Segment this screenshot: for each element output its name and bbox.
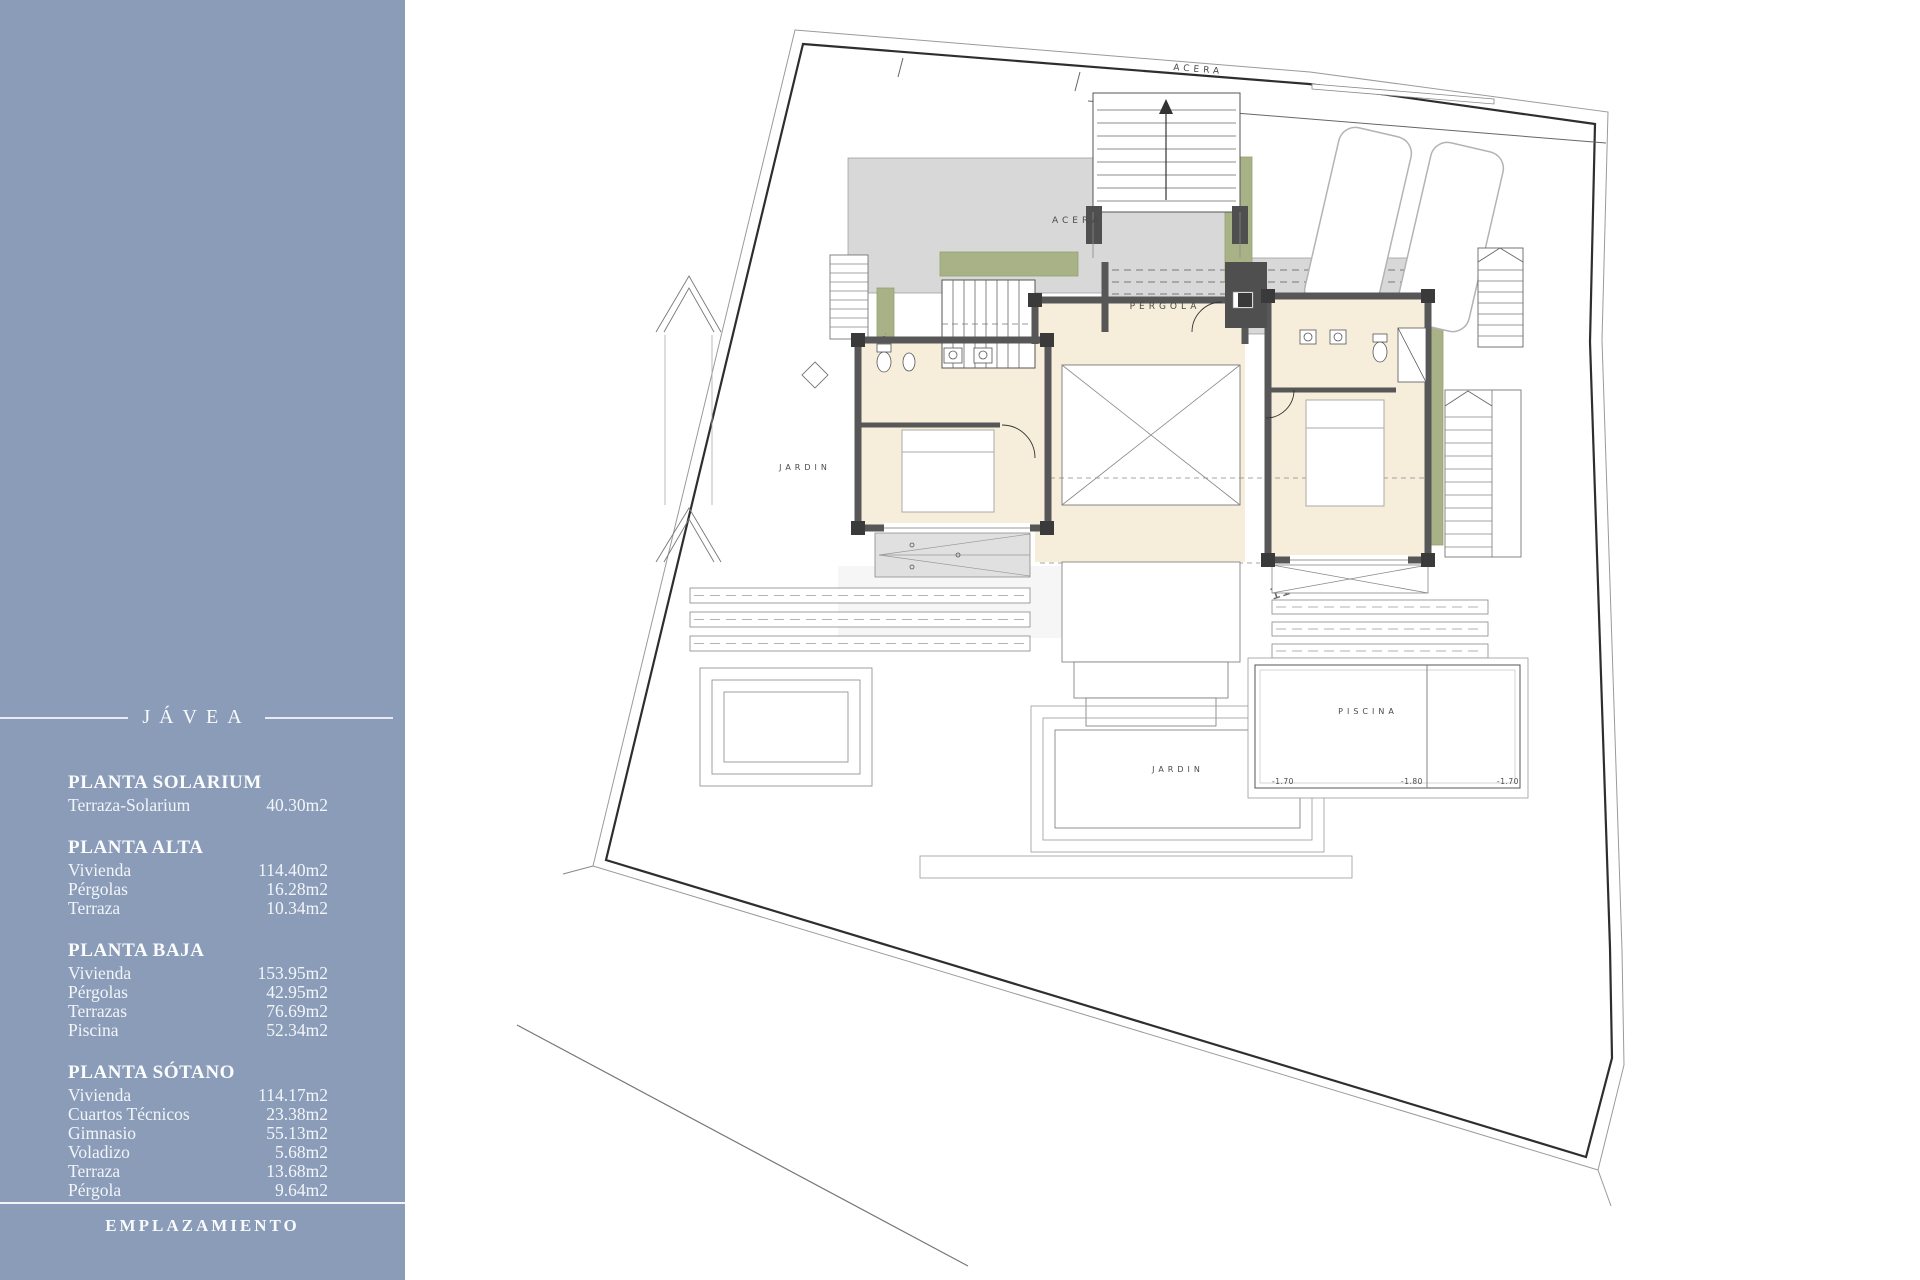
area-value: 114.17m2	[258, 1086, 328, 1105]
brochure-page: JÁVEA PLANTA SOLARIUM Terraza-Solarium 4…	[0, 0, 1920, 1280]
area-row: Pérgolas 42.95m2	[68, 983, 328, 1002]
area-row: Voladizo 5.68m2	[68, 1143, 328, 1162]
garden-bottom-label: JARDIN	[1151, 765, 1204, 774]
area-label: Pérgolas	[68, 983, 128, 1002]
view-name: EMPLAZAMIENTO	[0, 1216, 405, 1236]
area-label: Vivienda	[68, 861, 131, 880]
title-rule-right	[265, 717, 393, 719]
area-value: 40.30m2	[266, 796, 328, 815]
area-value: 42.95m2	[266, 983, 328, 1002]
porch-steps	[1062, 562, 1240, 726]
area-label: Vivienda	[68, 1086, 131, 1105]
green-strip	[940, 252, 1078, 276]
floor-section: PLANTA SÓTANO Vivienda 114.17m2 Cuartos …	[68, 1062, 328, 1200]
area-label: Vivienda	[68, 964, 131, 983]
area-value: 16.28m2	[266, 880, 328, 899]
site-plan: ACERA JARD. 117,55	[405, 0, 1920, 1280]
sidewalk-strip	[898, 58, 1606, 143]
area-label: Piscina	[68, 1021, 119, 1040]
floor-rows: Terraza-Solarium 40.30m2	[68, 796, 328, 815]
area-label: Terraza-Solarium	[68, 796, 190, 815]
pool-depth-right: -1.70	[1497, 777, 1519, 786]
garden-steps-left	[656, 255, 868, 562]
sidebar: JÁVEA PLANTA SOLARIUM Terraza-Solarium 4…	[0, 0, 405, 1280]
slat-terrace-left	[690, 588, 1030, 651]
project-title-block: JÁVEA	[0, 706, 405, 729]
area-label: Terrazas	[68, 1002, 127, 1021]
right-stair-upper	[1478, 248, 1523, 347]
pool-label: PISCINA	[1338, 707, 1398, 716]
area-row: Gimnasio 55.13m2	[68, 1124, 328, 1143]
area-label: Voladizo	[68, 1143, 130, 1162]
title-rule-left	[0, 717, 128, 719]
area-value: 13.68m2	[266, 1162, 328, 1181]
area-value: 55.13m2	[266, 1124, 328, 1143]
area-value: 52.34m2	[266, 1021, 328, 1040]
footer-divider	[0, 1202, 405, 1204]
area-row: Vivienda 114.17m2	[68, 1086, 328, 1105]
right-stair-lower	[1445, 390, 1521, 557]
area-row: Vivienda 114.40m2	[68, 861, 328, 880]
floor-heading: PLANTA ALTA	[68, 837, 328, 859]
area-row: Terrazas 76.69m2	[68, 1002, 328, 1021]
area-value: 153.95m2	[258, 964, 329, 983]
area-row: Terraza-Solarium 40.30m2	[68, 796, 328, 815]
area-label: Pérgolas	[68, 880, 128, 899]
floor-rows: Vivienda 114.40m2 Pérgolas 16.28m2 Terra…	[68, 861, 328, 918]
floor-section: PLANTA ALTA Vivienda 114.40m2 Pérgolas 1…	[68, 837, 328, 918]
area-label: Terraza	[68, 1162, 120, 1181]
area-label: Gimnasio	[68, 1124, 136, 1143]
floor-rows: Vivienda 153.95m2 Pérgolas 42.95m2 Terra…	[68, 964, 328, 1040]
pergola-label: PÉRGOLA	[1130, 300, 1201, 312]
area-label: Terraza	[68, 899, 120, 918]
x-brace-terrace	[1272, 565, 1428, 593]
floor-heading: PLANTA BAJA	[68, 940, 328, 962]
street-line	[517, 1025, 968, 1266]
area-value: 76.69m2	[266, 1002, 328, 1021]
area-summary: PLANTA SOLARIUM Terraza-Solarium 40.30m2…	[68, 772, 328, 1222]
area-label: Cuartos Técnicos	[68, 1105, 190, 1124]
area-value: 10.34m2	[266, 899, 328, 918]
area-row: Pérgola 9.64m2	[68, 1181, 328, 1200]
floor-heading: PLANTA SOLARIUM	[68, 772, 328, 794]
floor-section: PLANTA SOLARIUM Terraza-Solarium 40.30m2	[68, 772, 328, 815]
floor-rows: Vivienda 114.17m2 Cuartos Técnicos 23.38…	[68, 1086, 328, 1200]
area-value: 23.38m2	[266, 1105, 328, 1124]
area-row: Cuartos Técnicos 23.38m2	[68, 1105, 328, 1124]
project-title: JÁVEA	[142, 706, 250, 729]
area-row: Pérgolas 16.28m2	[68, 880, 328, 899]
area-value: 5.68m2	[275, 1143, 328, 1162]
area-row: Piscina 52.34m2	[68, 1021, 328, 1040]
pool-depth-middle: -1.80	[1401, 777, 1423, 786]
floor-section: PLANTA BAJA Vivienda 153.95m2 Pérgolas 4…	[68, 940, 328, 1040]
garden-left-label: JARDIN	[778, 463, 831, 472]
area-label: Pérgola	[68, 1181, 121, 1200]
terrace-acera-label: ACERA	[1052, 216, 1102, 226]
awning	[875, 533, 1030, 577]
area-value: 114.40m2	[258, 861, 328, 880]
slat-terrace-right	[1272, 600, 1488, 658]
area-value: 9.64m2	[275, 1181, 328, 1200]
area-row: Terraza 10.34m2	[68, 899, 328, 918]
bed	[1306, 400, 1384, 506]
floor-heading: PLANTA SÓTANO	[68, 1062, 328, 1084]
stepped-platforms	[700, 668, 872, 786]
area-row: Vivienda 153.95m2	[68, 964, 328, 983]
area-row: Terraza 13.68m2	[68, 1162, 328, 1181]
survey-marker	[802, 362, 828, 388]
pool-depth-left: -1.70	[1272, 777, 1294, 786]
bed	[902, 430, 994, 512]
